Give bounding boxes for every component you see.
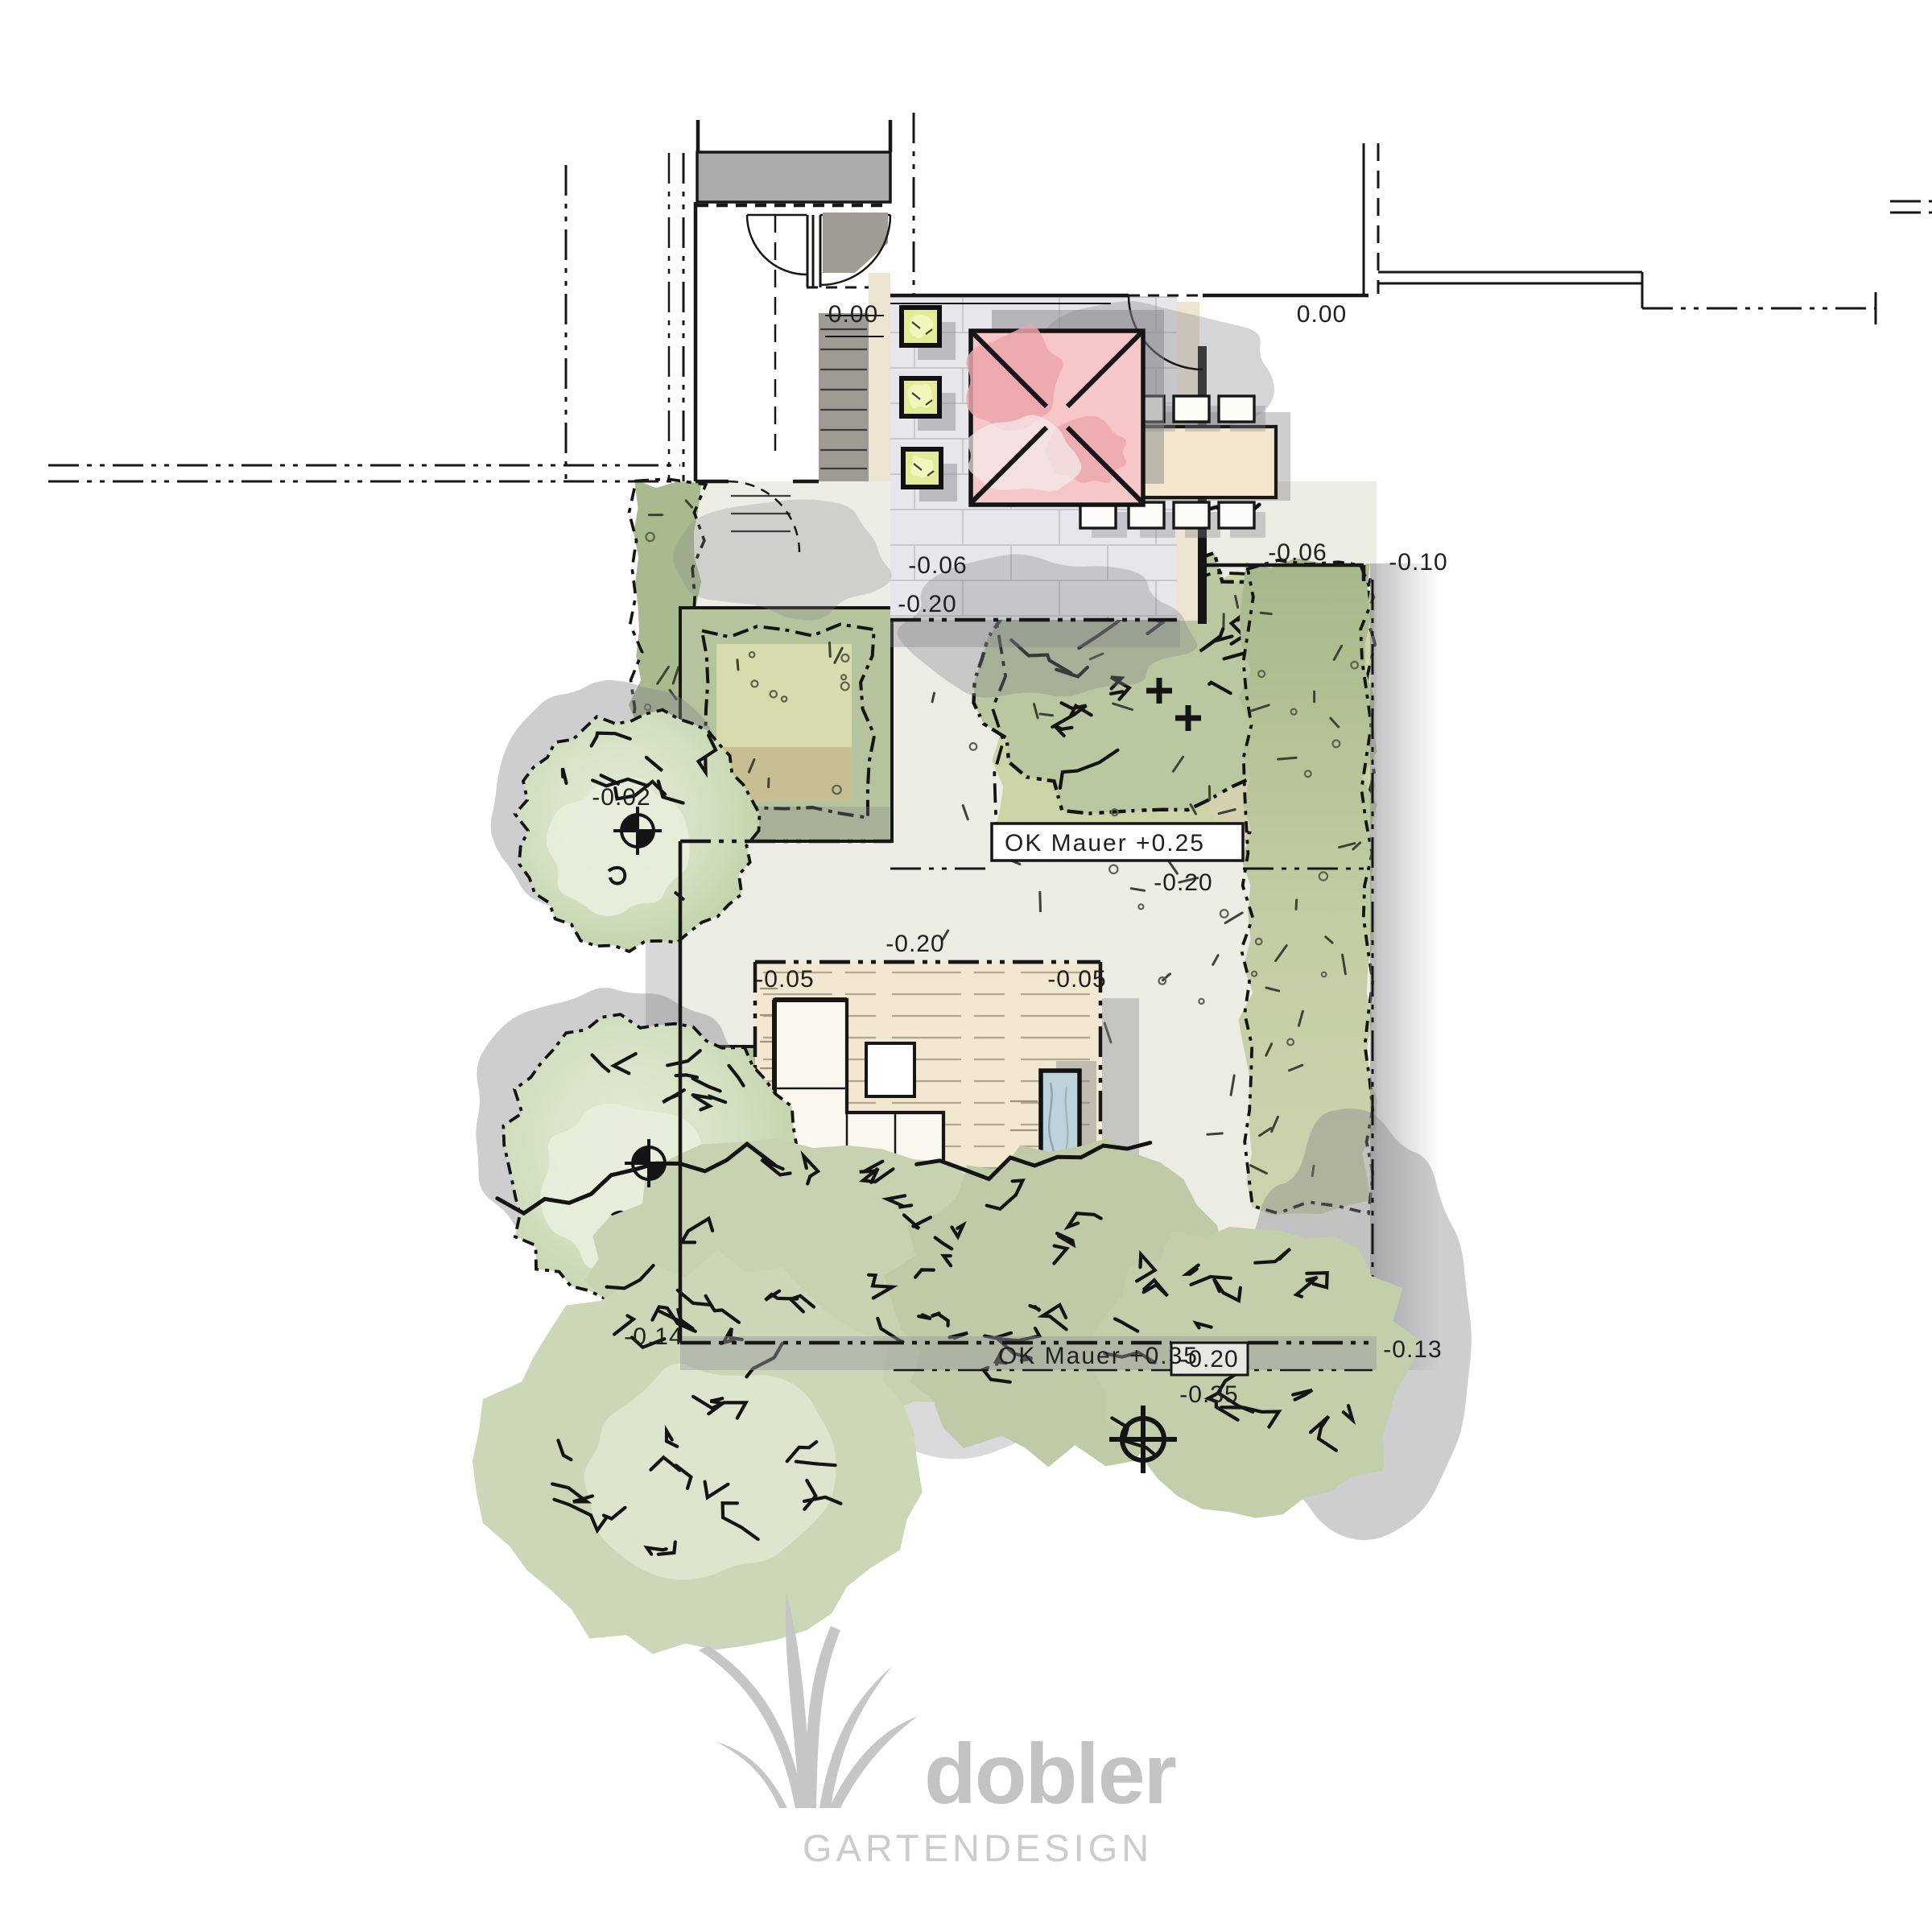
elevation-label: -0.20	[1154, 869, 1212, 896]
elevation-label: -0.20	[898, 591, 956, 617]
wall-label: OK Mauer +0.25	[1005, 830, 1205, 857]
side-table	[866, 1043, 914, 1096]
door-jamb	[807, 215, 820, 287]
terrace-step-shadow	[890, 620, 1180, 647]
speckle-dash	[1261, 613, 1271, 613]
speckle-dash	[1207, 1133, 1222, 1134]
elevation-label: 0.00	[828, 301, 878, 328]
planter-plant	[907, 384, 931, 408]
chair	[1174, 396, 1209, 422]
elevation-label: -0.06	[908, 552, 967, 579]
chair	[1174, 502, 1209, 528]
elevation-label: -0.20	[885, 931, 944, 957]
speckle-dash	[1040, 714, 1053, 716]
speckle-dash	[1296, 900, 1297, 909]
far-wall-dash	[1890, 201, 1932, 213]
logo-brand: dobler	[924, 1727, 1176, 1822]
logo-subtitle: GARTENDESIGN	[803, 1827, 1153, 1869]
boundary-line	[48, 465, 680, 481]
neighbour-wall	[1378, 272, 1642, 283]
elevation-label: 0.00	[1297, 301, 1347, 328]
entry-steps	[819, 313, 869, 481]
elevation-label: -0.06	[1268, 539, 1327, 566]
elevation-label: -0.13	[1383, 1336, 1442, 1363]
door-swing-arc	[747, 215, 807, 275]
elevation-label: -0.20	[1179, 1346, 1238, 1373]
chair	[1219, 502, 1254, 528]
garden-plan: OK Mauer +0.25OK Mauer +0.35 0.000.00-0.…	[0, 0, 1932, 1932]
elevation-label: -0.05	[755, 966, 814, 993]
elevation-label: -0.02	[592, 784, 650, 811]
wall-block	[697, 152, 890, 202]
vestibule-wall	[823, 213, 888, 273]
garden-plan-page: OK Mauer +0.25OK Mauer +0.35 0.000.00-0.…	[0, 0, 1932, 1932]
elevation-label: -0.10	[1389, 549, 1447, 576]
speckle-dash	[737, 660, 738, 670]
elevation-label: -0.35	[1179, 1381, 1238, 1408]
elevation-label: -0.05	[1047, 966, 1106, 993]
speckle-dash	[1040, 892, 1041, 911]
elevation-label: -0.14	[624, 1323, 683, 1350]
chair	[1219, 396, 1254, 422]
wall-label: OK Mauer +0.35	[998, 1343, 1199, 1369]
planter-boxes	[902, 308, 957, 502]
speckle-dash	[830, 642, 831, 656]
speckle-dash	[1278, 758, 1297, 759]
parasol	[966, 310, 1164, 505]
